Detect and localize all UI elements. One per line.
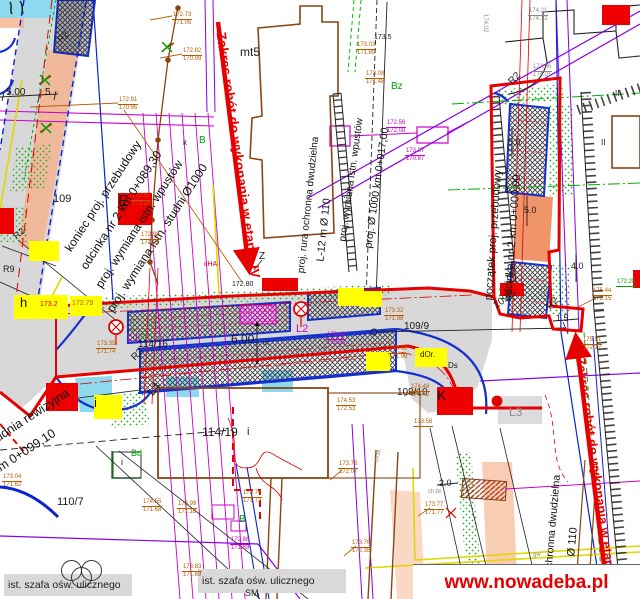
elevation-label: 172.82170.99 [182,48,202,62]
elevation-label: 172.91170.95 [118,97,138,111]
map-label: L2 [296,324,308,335]
map-label: Bz [391,82,403,92]
elevation-label: 175.51172.17 [582,337,602,351]
map-label: 109/9 [404,322,429,332]
map-label: i [121,458,123,467]
elevation-label: 173.37170.87 [405,148,425,162]
map-label: 5.0 [524,206,537,215]
red-chip [0,208,14,234]
site-plan-canvas: E K h i proj. rura ochronna dwudzielna L… [0,0,640,599]
map-label: 4.0 [571,262,584,271]
map-label: gw [533,552,541,558]
elevation-label: 174.06174.01 [532,64,552,78]
elevation-label: 173.30171.99 [388,346,408,360]
map-label: ch.bł. [428,489,442,495]
map-label: 5 [45,88,51,98]
elevation-label: 172.98171.22 [140,232,160,246]
elevation-label: 172.73171.05 [172,12,192,26]
elevation-label: 172.56172.08 [386,120,406,134]
map-label: II [601,139,605,147]
elevation-label: 174.21174.13 [528,8,548,22]
elevation-label: 174.48171.42 [410,384,430,398]
map-label: 174.02 [482,14,488,32]
elevation-label: 173.76172.38 [351,540,371,554]
yellow-chip [29,241,59,261]
map-label: mt5 [240,46,260,58]
watermark-link[interactable]: www.nowadeba.pl [445,572,609,594]
map-label: 6.00 [231,333,254,345]
map-label: R9 [3,265,15,274]
elevation-label: 172.86171.69 [230,537,250,551]
map-label: 173.2 [40,301,58,308]
map-label: 5.00 [6,88,25,98]
yellow-chip [360,291,382,307]
map-label: cHA [204,261,217,268]
map-label: Ds [448,362,458,370]
map-label: B [239,515,246,525]
map-label: II [615,90,619,98]
marker-box-k-label: K [437,387,473,415]
map-label: 114/19 [202,426,238,438]
elevation-label: 173.04171.62 [2,474,22,488]
elevation-label: 172.28 [616,279,636,287]
map-label: 5.0 [508,138,521,147]
map-label: 2.0 [439,479,452,488]
elevation-label: 173.32171.98 [384,308,404,322]
map-label: 1.5 [556,314,569,323]
elevation-label: 173.35171.74 [96,341,116,355]
map-label: i [247,427,249,438]
legend-band-right-text: ist. szafa ośw. ulicznego [202,575,315,587]
marker-box-i: i [94,395,122,419]
map-label: m [263,340,269,347]
map-label: 173.5 [374,34,392,41]
elevation-label: 174.53172.53 [336,398,356,412]
elevation-label: 173.77171.77 [424,502,444,516]
map-label: k [183,139,187,147]
map-label: dOr. [420,351,435,359]
red-chip [602,5,630,25]
red-chip [262,278,298,291]
map-label: B [199,136,206,146]
legend-band-left-text: ist. szafa ośw. ulicznego [8,579,121,591]
map-label: 172.79 [72,300,93,307]
map-label: SM [245,589,259,598]
marker-box-i-label: i [94,395,122,419]
legend-band-right: ist. szafa ośw. ulicznego [198,569,346,593]
elevation-label: 173.76172.07 [338,461,358,475]
map-label: 172.80 [232,281,253,288]
map-label: 109 [53,194,71,205]
map-label: 110/7 [57,497,84,508]
elevation-label: 173.83171.69 [182,564,202,578]
elevation-label: 173.42172.03 [326,332,346,346]
yellow-chip [366,352,390,371]
elevation-label: 172.97171.10 [131,193,151,207]
elevation-label: 173.99171.18 [177,501,197,515]
map-label: L3 [509,406,522,418]
elevation-label: 174.55171.68 [142,499,162,513]
circles-symbol [71,567,92,588]
elevation-label: 173.56 [413,419,433,427]
elevation-label: 175.44172.15 [592,288,612,302]
map-label: Bd [131,449,142,458]
elevation-label: 173.08171.48 [365,71,385,85]
marker-box-k: K [437,387,473,415]
elevation-label: 173.74171.72 [242,490,262,504]
elevation-label: 173.03171.89 [356,42,376,56]
watermark-band: www.nowadeba.pl [413,564,640,599]
map-label: 114/16 [138,340,168,350]
